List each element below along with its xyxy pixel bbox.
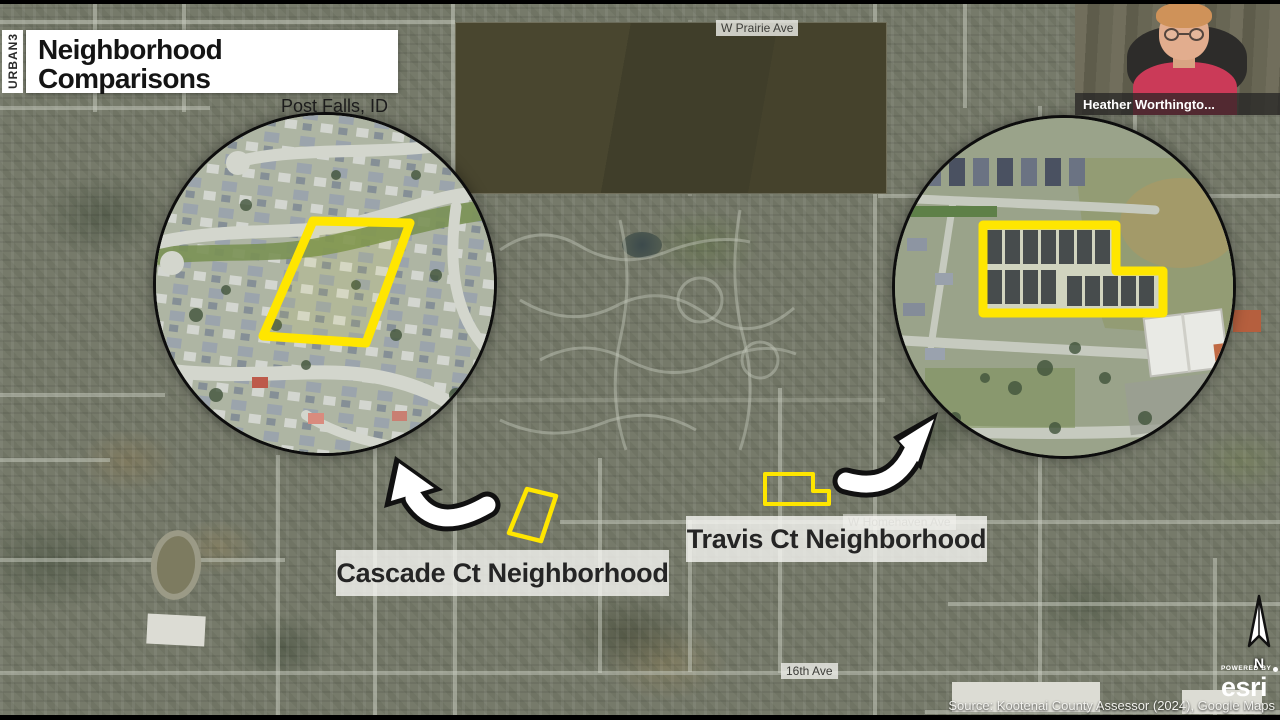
road	[963, 4, 967, 108]
road	[0, 458, 110, 462]
urban3-logo: URBAN3	[2, 30, 23, 93]
road	[455, 398, 885, 402]
running-track	[147, 528, 204, 603]
road	[0, 393, 165, 397]
participant-name-badge: Heather Worthingto...	[1075, 93, 1280, 115]
esri-globe-icon	[1273, 667, 1278, 672]
cascade-aerial-detail	[156, 115, 497, 456]
inset-circle-travis	[892, 115, 1236, 459]
travis-neighborhood-label: Travis Ct Neighborhood	[686, 516, 987, 562]
street-label-prairie: W Prairie Ave	[716, 20, 798, 36]
road	[948, 602, 1280, 606]
source-credit: Source: Kootenai County Assessor (2024),…	[948, 698, 1275, 713]
cascade-neighborhood-label: Cascade Ct Neighborhood	[336, 550, 669, 596]
speaker-hair	[1156, 2, 1212, 28]
webcam-video: Heather Worthingto...	[1075, 0, 1280, 115]
speaker-glasses	[1164, 28, 1204, 43]
letterbox-bottom	[0, 715, 1280, 720]
esri-brand: esri	[1221, 674, 1278, 701]
building	[146, 614, 205, 647]
letterbox-top	[0, 0, 1280, 4]
road	[0, 558, 285, 562]
urban3-logo-text: URBAN3	[6, 33, 20, 89]
title-box: Neighborhood Comparisons Post Falls, ID	[26, 30, 398, 93]
slide-frame: W Prairie Ave W Homehaven Ave 16th Ave	[0, 0, 1280, 720]
page-title: Neighborhood Comparisons	[38, 35, 388, 94]
building	[1233, 310, 1261, 332]
participant-name: Heather Worthingto...	[1083, 97, 1215, 112]
street-label-16th: 16th Ave	[781, 663, 838, 679]
north-arrow: N	[1244, 594, 1274, 671]
north-arrow-icon	[1244, 594, 1274, 650]
pond	[622, 232, 662, 258]
road	[0, 20, 455, 24]
road	[276, 455, 280, 716]
farm-field	[455, 22, 887, 194]
travis-aerial-detail	[895, 118, 1236, 459]
esri-logo: POWERED BY esri	[1221, 666, 1278, 701]
inset-circle-cascade	[153, 112, 497, 456]
page-subtitle: Post Falls, ID	[38, 96, 388, 117]
road	[0, 671, 1280, 675]
